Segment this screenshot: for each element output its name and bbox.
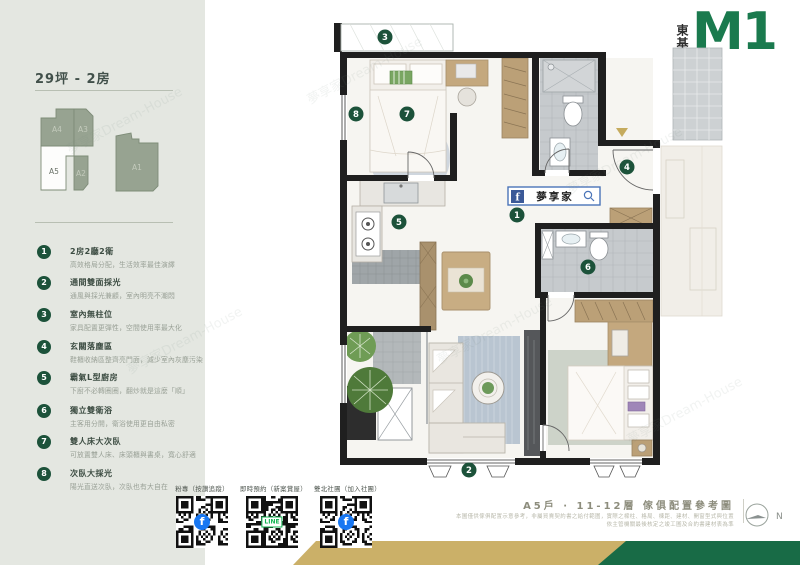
feature-title: 雙人床大次臥 [70, 436, 121, 447]
feature-title: 通間雙面採光 [70, 277, 121, 288]
marker-3: 3 [378, 30, 393, 45]
feature-desc: 高效格局分配，生活效率最佳演繹 [70, 259, 175, 269]
feature-number-badge: 5 [37, 371, 51, 385]
marker-6: 6 [581, 260, 596, 275]
line-icon: LINE [261, 517, 282, 528]
plan-caption: A5戶 · 11-12層 傢俱配置參考圖 [523, 497, 734, 512]
svg-text:4: 4 [624, 163, 630, 173]
feature-number-badge: 6 [37, 404, 51, 418]
feature-number-badge: 1 [37, 245, 51, 259]
qr-facebook-page: 粉專（按讚追蹤） f [170, 484, 234, 548]
disclaimer-line-1: 本圖僅供傢俱配置示意參考，非屬買賣契約書之給付範圍，實際之樑柱、格局、棟距、建材… [456, 512, 734, 520]
keyplan-diagram: A4 A3 A5 A2 A1 [36, 106, 178, 208]
feature-number-badge: 3 [37, 308, 51, 322]
keyplan-units [41, 109, 158, 191]
unit-a1 [116, 133, 158, 191]
sidebar: 29坪 - 2房 A4 A3 A5 A2 A1 1 2房2廳2衛 [0, 0, 205, 565]
feature-desc: 陽光直送次臥，次臥也有大自在 [70, 481, 168, 491]
floor-plan: f 夢享家 1 2 3 4 5 6 7 8 [300, 15, 730, 500]
unit-a3-label: A3 [78, 125, 88, 134]
sofa-chaise [429, 423, 505, 453]
qr-facebook-group: 雙北社團（加入社團） f [314, 484, 378, 548]
feature-item-6: 6 獨立雙衛浴 主客用分開，衛浴使用更自由私密 [0, 404, 205, 434]
unit-size-title: 29坪 - 2房 [35, 68, 111, 87]
qr-label: 粉專（按讚追蹤） [170, 484, 234, 493]
feature-title: 霸氣L型廚房 [70, 372, 118, 383]
feature-desc: 家具配置更彈性，空間使用率最大化 [70, 322, 182, 332]
feature-desc: 下廚不必轉圈圈，翻炒就是這麼「順」 [70, 385, 189, 395]
feature-number-badge: 7 [37, 435, 51, 449]
feature-desc: 通風與採光兼顧，室內明亮不潮悶 [70, 290, 175, 300]
ac-platform [341, 24, 453, 51]
qr-label: 即時預約（新案賞屋） [240, 484, 304, 493]
svg-text:1: 1 [514, 211, 520, 221]
unit-a2-label: A2 [76, 169, 86, 178]
feature-item-4: 4 玄關落塵區 鞋櫃收納區整齊亮門面，減少室內灰塵污染 [0, 340, 205, 370]
fb-page-name: 夢享家 [536, 190, 574, 203]
feature-number-badge: 8 [37, 467, 51, 481]
qr-label: 雙北社團（加入社團） [314, 484, 378, 493]
marker-4: 4 [620, 160, 635, 175]
desk-chair [612, 330, 628, 356]
feature-item-3: 3 室內無柱位 家具配置更彈性，空間使用率最大化 [0, 308, 205, 338]
flyer-page: 29坪 - 2房 A4 A3 A5 A2 A1 1 2房2廳2衛 [0, 0, 800, 565]
facebook-icon: f [194, 514, 210, 530]
compass-north-label: N [776, 512, 783, 522]
marker-7: 7 [400, 107, 415, 122]
feature-desc: 可放置雙人床、床頭櫃與書桌，寬心舒適 [70, 449, 196, 459]
desk-chair [458, 88, 476, 106]
feature-desc: 鞋櫃收納區整齊亮門面，減少室內灰塵污染 [70, 354, 203, 364]
feature-item-5: 5 霸氣L型廚房 下廚不必轉圈圈，翻炒就是這麼「順」 [0, 371, 205, 401]
feature-title: 2房2廳2衛 [70, 246, 114, 257]
disclaimer-line-2: 依主管機關最後核定之竣工圖及合約書建材表為準 [607, 520, 734, 528]
qr-code: LINE [246, 496, 298, 548]
facebook-icon: f [338, 514, 354, 530]
svg-text:3: 3 [382, 33, 388, 43]
feature-item-1: 1 2房2廳2衛 高效格局分配，生活效率最佳演繹 [0, 245, 205, 275]
svg-text:7: 7 [404, 110, 410, 120]
green-band [598, 541, 800, 565]
svg-text:8: 8 [353, 110, 359, 120]
svg-text:6: 6 [585, 263, 591, 273]
unit-a5-label: A5 [49, 167, 59, 176]
unit-a4-label: A4 [52, 125, 62, 134]
marker-5: 5 [392, 215, 407, 230]
feature-number-badge: 2 [37, 276, 51, 290]
wardrobe [502, 58, 528, 138]
adjacent-core [661, 48, 722, 316]
feature-title: 室內無柱位 [70, 309, 113, 320]
marker-8: 8 [349, 107, 364, 122]
svg-text:f: f [515, 193, 520, 204]
divider [35, 222, 173, 223]
bottom-bands [0, 535, 800, 565]
feature-number-badge: 4 [37, 340, 51, 354]
qr-code: f [320, 496, 372, 548]
unit-a1-label: A1 [132, 163, 142, 172]
qr-line-booking: 即時預約（新案賞屋） LINE [240, 484, 304, 548]
compass: N [742, 501, 786, 529]
svg-text:5: 5 [396, 218, 402, 228]
feature-title: 次臥大採光 [70, 468, 113, 479]
tv-wall [524, 330, 540, 456]
feature-title: 玄關落塵區 [70, 341, 113, 352]
qr-code: f [176, 496, 228, 548]
feature-item-7: 7 雙人床大次臥 可放置雙人床、床頭櫃與書桌，寬心舒適 [0, 435, 205, 465]
feature-item-2: 2 通間雙面採光 通風與採光兼顧，室內明亮不潮悶 [0, 276, 205, 306]
fb-search-banner: f 夢享家 [508, 187, 600, 205]
divider [35, 90, 173, 91]
feature-title: 獨立雙衛浴 [70, 405, 113, 416]
marker-1: 1 [510, 208, 525, 223]
feature-desc: 主客用分開，衛浴使用更自由私密 [70, 418, 175, 428]
marker-2: 2 [462, 463, 477, 478]
svg-text:2: 2 [466, 466, 472, 476]
